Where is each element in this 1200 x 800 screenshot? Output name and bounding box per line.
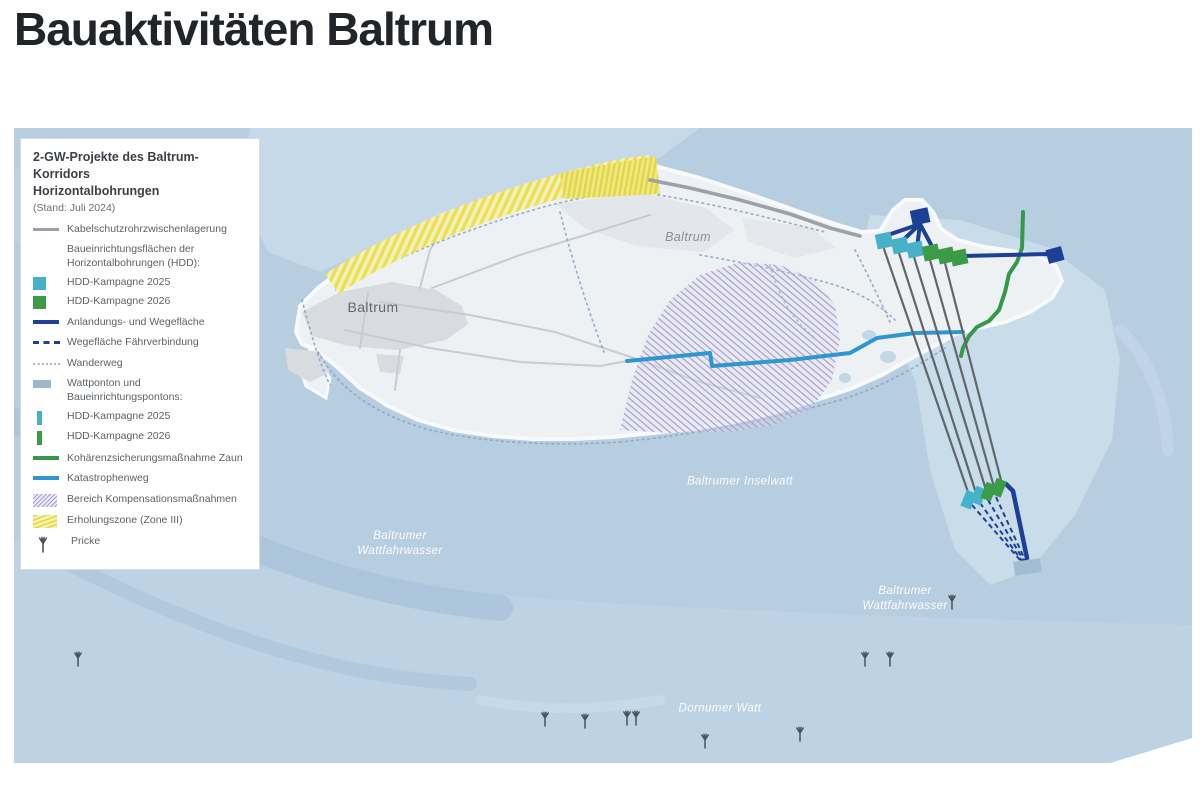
hdd-2025-swatch	[33, 277, 46, 290]
navy-dashed-line-swatch	[33, 341, 60, 344]
dotted-line-swatch	[33, 363, 60, 365]
legend-title-line2: Horizontalbohrungen	[33, 183, 251, 200]
ponton-2025-swatch	[37, 411, 42, 425]
legend-item-pricke: Pricke	[33, 534, 251, 553]
legend-item-katastrophenweg: Katastrophenweg	[33, 471, 251, 486]
legend-item-hdd-header: Baueinrichtungsflächen der Horizontalboh…	[33, 242, 251, 270]
legend-item-kabelschutzrohr: Kabelschutzrohrzwischenlagerung	[33, 222, 251, 237]
legend-date-note: (Stand: Juli 2024)	[33, 202, 251, 214]
page-title: Bauaktivitäten Baltrum	[14, 2, 493, 56]
legend-item-faehrverbindung: Wegefläche Fährverbindung	[33, 335, 251, 350]
legend-item-zaun: Kohärenzsicherungsmaßnahme Zaun	[33, 451, 251, 466]
pricke-icon	[37, 536, 49, 553]
legend-item-erholungszone: Erholungszone (Zone III)	[33, 513, 251, 528]
hdd-2026-swatch	[33, 296, 46, 309]
legend-item-ponton-2026: HDD-Kampagne 2026	[33, 429, 251, 445]
yellow-hatch-swatch	[33, 515, 57, 528]
legend-item-anlandung: Anlandungs- und Wegefläche	[33, 315, 251, 330]
blue-line-swatch	[33, 476, 59, 480]
gray-line-swatch	[33, 228, 59, 231]
ponton-2026-swatch	[37, 431, 42, 445]
legend-item-hdd-2025: HDD-Kampagne 2025	[33, 275, 251, 290]
legend-title-line1: 2-GW-Projekte des Baltrum-Korridors	[33, 149, 251, 183]
legend-item-wattponton: Wattponton und Baueinrichtungspontons:	[33, 376, 251, 404]
green-line-swatch	[33, 456, 59, 460]
legend-item-ponton-2025: HDD-Kampagne 2025	[33, 409, 251, 425]
legend-item-wanderweg: Wanderweg	[33, 356, 251, 371]
purple-hatch-swatch	[33, 494, 57, 507]
legend-item-kompensation: Bereich Kompensationsmaßnahmen	[33, 492, 251, 507]
wattponton-swatch	[33, 380, 51, 388]
legend-item-hdd-2026: HDD-Kampagne 2026	[33, 294, 251, 309]
map-legend: 2-GW-Projekte des Baltrum-Korridors Hori…	[20, 138, 260, 570]
navy-line-swatch	[33, 320, 59, 324]
page: Bauaktivitäten Baltrum	[0, 0, 1200, 800]
